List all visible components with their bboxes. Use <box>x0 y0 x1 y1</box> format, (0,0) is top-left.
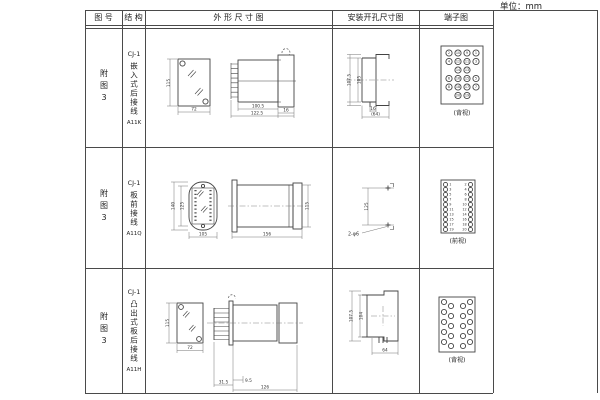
row1-terminal-pins: 2109141211314136161558181772019 <box>446 50 479 99</box>
svg-text:2: 2 <box>448 51 450 55</box>
svg-text:3: 3 <box>475 60 477 64</box>
row2-hole-label: 2-φ6 <box>348 232 359 238</box>
row3-front-view: 115 72 <box>165 303 203 353</box>
header-structure: 结 构 <box>122 10 145 25</box>
row2-structure: CJ-1 板前接线 A11Q <box>123 147 145 268</box>
svg-text:11: 11 <box>449 208 453 212</box>
drawing-sheet: 单位：mm 图 号 结 构 外 形 尺 寸 图 安装开孔尺寸图 端子图 附图3 … <box>0 0 600 400</box>
svg-text:10: 10 <box>462 203 466 207</box>
row3-model: CJ-1 <box>128 288 141 296</box>
svg-text:9: 9 <box>466 51 468 55</box>
row1-dim-body-width: 100.5 <box>252 104 265 110</box>
svg-text:4: 4 <box>448 60 450 64</box>
header-outline: 外 形 尺 寸 图 <box>145 10 332 25</box>
svg-text:20: 20 <box>456 94 460 98</box>
row1-mounting-drawing: 107.5 105 16 (64) <box>332 28 419 147</box>
row2-dim-side-height: 115 <box>305 202 311 210</box>
svg-text:13: 13 <box>449 213 453 217</box>
row3-dim-cutout-v2: 104 <box>359 312 365 320</box>
row3-terminal-caption: (背视) <box>449 356 466 364</box>
row1-front-view: 115 72 <box>166 59 210 115</box>
svg-text:19: 19 <box>449 228 453 232</box>
svg-text:15: 15 <box>449 218 453 222</box>
row2-dim-front-width: 105 <box>199 232 207 238</box>
svg-text:2: 2 <box>465 183 467 187</box>
grid-line-header-1 <box>85 25 493 26</box>
row3-dim-cutout-v1: 107.5 <box>349 310 355 323</box>
row1-dim-cutout-h1: 16 <box>370 106 376 112</box>
svg-text:5: 5 <box>475 77 477 81</box>
row2-terminal-diagram: 1234567891011121314151617181920 (前视) <box>419 147 493 268</box>
row3-fig-no-text: 附图3 <box>99 312 110 349</box>
row3-dim-front-width: 72 <box>187 345 193 351</box>
row3-structure-name: 凸出式板后接线 <box>129 300 140 363</box>
svg-text:18: 18 <box>462 223 466 227</box>
row2-outline-drawing: 140 125 105 156 115 <box>145 147 332 268</box>
svg-text:8: 8 <box>465 198 467 202</box>
svg-text:12: 12 <box>462 208 466 212</box>
svg-text:11: 11 <box>465 60 469 64</box>
sheet-right-border <box>597 10 598 393</box>
row3-mounting-drawing: 107.5 104 64 <box>332 268 419 393</box>
svg-text:8: 8 <box>448 85 450 89</box>
header-terminal: 端子图 <box>419 10 493 25</box>
row1-dim-flange: 16 <box>283 108 289 114</box>
row1-dim-total-width: 122.5 <box>251 111 264 117</box>
row2-dim-side-width: 156 <box>263 232 271 238</box>
row1-dim-cutout-v2: 105 <box>357 76 363 84</box>
row1-terminal-diagram: 2109141211314136161558181772019 (背视) <box>419 28 493 147</box>
row2-side-view: 156 115 <box>228 180 311 239</box>
row2-dim-hole-spacing: 125 <box>364 202 370 210</box>
row2-front-view: 140 125 105 <box>171 182 218 239</box>
hook-symbol <box>229 295 236 299</box>
svg-text:1: 1 <box>449 183 451 187</box>
row3-code: A11H <box>127 367 142 373</box>
svg-text:14: 14 <box>456 68 460 72</box>
svg-text:6: 6 <box>448 77 450 81</box>
row1-dim-cutout-h2: (64) <box>371 112 380 118</box>
row1-structure: CJ-1 嵌入式后接线 A11K <box>123 28 145 147</box>
row2-fig-no-text: 附图3 <box>99 189 110 226</box>
row3-dim-d2: 9.5 <box>245 378 252 384</box>
row2-mounting-holes <box>386 184 394 230</box>
svg-text:5: 5 <box>449 193 451 197</box>
svg-text:20: 20 <box>462 228 466 232</box>
row1-fig-no-text: 附图3 <box>99 69 110 106</box>
svg-text:1: 1 <box>475 51 477 55</box>
svg-text:18: 18 <box>456 85 460 89</box>
grid-line-c5 <box>493 10 494 393</box>
svg-text:17: 17 <box>465 85 469 89</box>
row1-fig-no: 附图3 <box>86 28 122 147</box>
svg-text:10: 10 <box>456 51 460 55</box>
grid-line-bottom <box>85 393 493 394</box>
svg-text:13: 13 <box>465 68 469 72</box>
row1-side-view: 100.5 16 122.5 <box>231 49 296 118</box>
svg-text:7: 7 <box>475 85 477 89</box>
header-fig-no: 图 号 <box>85 10 122 25</box>
svg-text:6: 6 <box>465 193 467 197</box>
row2-dim-front-h2: 125 <box>180 202 186 210</box>
row1-structure-name: 嵌入式后接线 <box>129 62 140 116</box>
row2-fig-no: 附图3 <box>86 147 122 268</box>
svg-text:19: 19 <box>465 94 469 98</box>
svg-text:9: 9 <box>449 203 451 207</box>
row2-terminal-pins: 1234567891011121314151617181920 <box>443 182 472 231</box>
row2-structure-name: 板前接线 <box>129 191 140 227</box>
svg-text:7: 7 <box>449 198 451 202</box>
row3-terminal-diagram: (背视) <box>419 268 493 393</box>
svg-text:17: 17 <box>449 223 453 227</box>
row1-terminal-caption: (背视) <box>454 109 471 117</box>
row1-model: CJ-1 <box>128 50 141 58</box>
svg-text:4: 4 <box>465 188 467 192</box>
row3-terminal-pins <box>441 299 472 348</box>
header-mounting: 安装开孔尺寸图 <box>332 10 419 25</box>
row2-terminal-caption: (前视) <box>450 237 467 245</box>
row1-dim-front-width: 72 <box>191 107 197 113</box>
row1-dim-front-height: 115 <box>166 79 172 87</box>
row3-side-view: 9.5 31.5 126 <box>207 295 303 392</box>
svg-text:3: 3 <box>449 188 451 192</box>
hook-symbol <box>282 49 290 55</box>
row2-model: CJ-1 <box>128 179 141 187</box>
row3-dim-d1: 31.5 <box>219 380 229 386</box>
row2-code: A11Q <box>126 231 141 237</box>
svg-text:14: 14 <box>462 213 466 217</box>
row3-outline-drawing: 115 72 9.5 31.5 126 <box>145 268 332 393</box>
row1-outline-drawing: 115 72 100.5 16 122.5 <box>145 28 332 147</box>
row2-dim-front-h1: 140 <box>171 202 177 210</box>
row3-structure: CJ-1 凸出式板后接线 A11H <box>123 268 145 393</box>
svg-text:15: 15 <box>465 77 469 81</box>
row3-dim-front-height: 115 <box>165 319 171 327</box>
row1-dim-cutout-v1: 107.5 <box>347 74 353 87</box>
row1-code: A11K <box>127 120 141 126</box>
svg-text:16: 16 <box>456 77 460 81</box>
row3-dim-d3: 126 <box>261 385 269 391</box>
row3-fig-no: 附图3 <box>86 268 122 393</box>
svg-text:12: 12 <box>456 60 460 64</box>
row2-mounting-drawing: 125 2-φ6 <box>332 147 419 268</box>
row3-dim-cutout-h1: 64 <box>382 348 388 354</box>
svg-text:16: 16 <box>462 218 466 222</box>
